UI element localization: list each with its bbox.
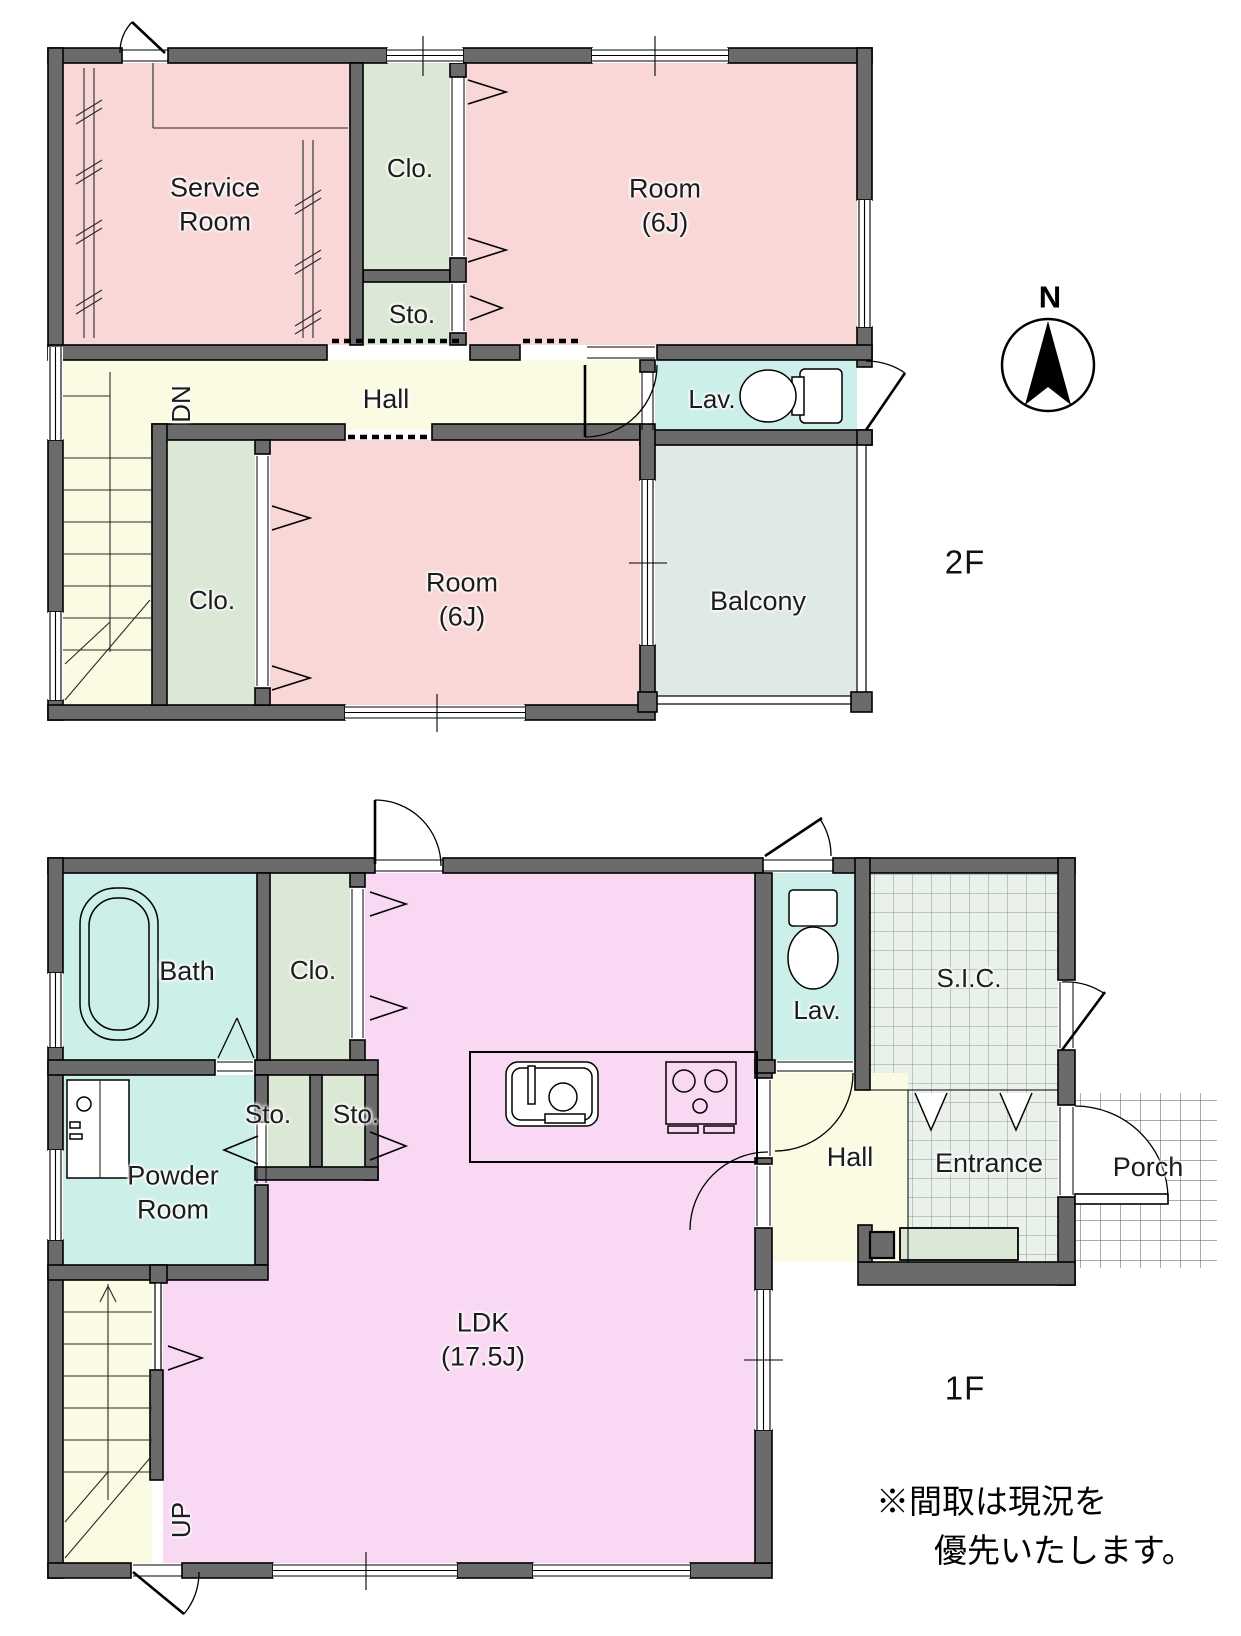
entrance-pillar: [870, 1232, 894, 1258]
ldk-label: LDK (17.5J): [441, 1306, 525, 1374]
door-leaf: [132, 22, 165, 53]
porch-label: Porch: [1113, 1151, 1184, 1185]
service-room-label: Service Room: [170, 171, 260, 239]
room-a-label-line1: Room: [629, 172, 701, 206]
stair-handrail: [155, 1283, 161, 1370]
room-a-label-line2: (6J): [629, 206, 701, 240]
storage-b-label: Sto.: [333, 1098, 379, 1131]
ldk-label-line1: LDK: [441, 1306, 525, 1340]
vanity-icon: [67, 1080, 129, 1178]
closet-bottom-area: [167, 440, 255, 705]
storage-a-label: Sto.: [245, 1098, 291, 1131]
powder-room-label-line2: Room: [127, 1193, 219, 1227]
closet-1f-label: Clo.: [290, 954, 336, 987]
floor2-label: 2F: [945, 541, 986, 582]
disclaimer-line1: ※間取は現況を: [876, 1478, 1195, 1527]
floor-plan-canvas: Service Room Clo. Sto. Room (6J) Hall DN…: [0, 0, 1241, 1636]
stairs-up-label: UP: [165, 1502, 198, 1538]
ldk-area: [365, 873, 755, 1563]
balcony-railing-bottom: [655, 696, 859, 704]
lav-1f-label: Lav.: [793, 994, 840, 1027]
room-b-label-line1: Room: [426, 566, 498, 600]
bath-label: Bath: [159, 955, 215, 989]
closet-bottom-label: Clo.: [189, 584, 235, 617]
stairs-dn-label: DN: [165, 385, 198, 423]
floor2-plan: [48, 22, 1094, 732]
powder-room-label: Powder Room: [127, 1159, 219, 1227]
floor1-room-fills: [63, 873, 1217, 1563]
toilet-icon-1f: [788, 890, 838, 989]
hall-1f-label: Hall: [827, 1141, 874, 1175]
powder-room-label-line1: Powder: [127, 1159, 219, 1193]
door-arc: [375, 800, 441, 866]
compass-icon: [1002, 319, 1094, 411]
sink-icon: [506, 1062, 598, 1126]
entrance-label: Entrance: [935, 1147, 1043, 1181]
floor1-label: 1F: [945, 1367, 986, 1408]
closet-top-label: Clo.: [387, 152, 433, 185]
compass-north-label: N: [1039, 279, 1061, 318]
room-a-label: Room (6J): [629, 172, 701, 240]
front-door-leaf: [1075, 1194, 1168, 1204]
lav-2f-label: Lav.: [688, 383, 735, 416]
balcony-railing-right: [857, 445, 866, 695]
service-room-label-line1: Service: [170, 171, 260, 205]
sic-label: S.I.C.: [936, 962, 1001, 995]
hall-2f-label: Hall: [363, 383, 410, 417]
disclaimer-note: ※間取は現況を 優先いたします。: [876, 1478, 1195, 1576]
balcony-area: [655, 445, 857, 703]
storage-2f-label: Sto.: [389, 298, 435, 331]
floor-plan-drawing: [0, 0, 1241, 1636]
ldk-label-line2: (17.5J): [441, 1340, 525, 1374]
service-room-label-line2: Room: [170, 205, 260, 239]
disclaimer-line2: 優先いたします。: [876, 1527, 1195, 1576]
balcony-label: Balcony: [710, 585, 806, 619]
room-b-label-line2: (6J): [426, 600, 498, 634]
shoe-cabinet: [900, 1228, 1018, 1260]
room-b-label: Room (6J): [426, 566, 498, 634]
